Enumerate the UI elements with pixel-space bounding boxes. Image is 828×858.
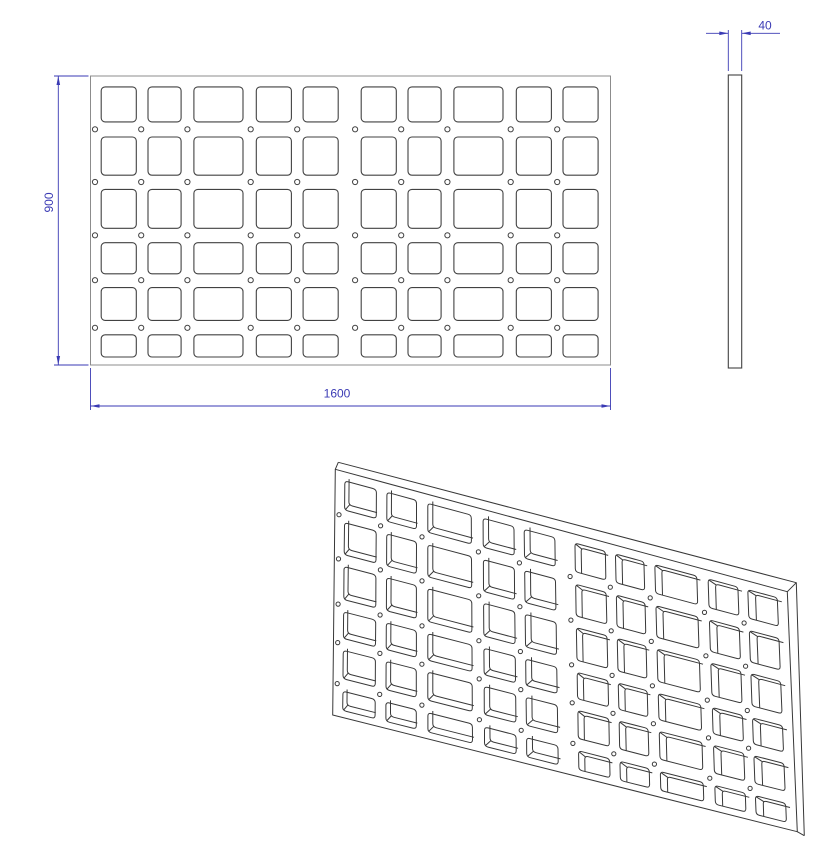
iso-cutout-depth (345, 521, 377, 557)
mounting-hole (139, 179, 144, 184)
cutout (256, 288, 291, 321)
dimension-width[interactable]: 1600 (91, 368, 611, 410)
mounting-hole (185, 233, 190, 238)
cutout (454, 243, 503, 274)
iso-mounting-hole (379, 524, 383, 528)
iso-cutout (658, 694, 701, 730)
iso-mounting-hole (650, 684, 654, 688)
iso-mounting-hole (708, 776, 712, 780)
iso-cutout (428, 673, 473, 711)
iso-cutout-depth (656, 566, 701, 595)
iso-cutout-depth (485, 647, 517, 677)
iso-cutout (616, 596, 645, 634)
cutout (361, 87, 396, 122)
cutout (563, 189, 598, 228)
iso-cutout (525, 615, 556, 654)
iso-mounting-hole (569, 618, 573, 622)
mounting-hole (248, 278, 253, 283)
mounting-hole (353, 278, 358, 283)
mounting-hole (92, 233, 97, 238)
iso-cutout (527, 738, 559, 764)
iso-cutout (428, 546, 472, 588)
mounting-hole (399, 325, 404, 330)
mounting-hole (508, 325, 513, 330)
iso-cutout-depth (344, 649, 376, 681)
iso-cutout-depth (712, 664, 745, 697)
cutout (256, 189, 291, 228)
iso-mounting-hole (336, 557, 340, 561)
cutout (101, 335, 136, 357)
iso-cutout-depth (485, 602, 517, 639)
iso-mounting-hole (378, 568, 382, 572)
iso-cutout (753, 719, 784, 752)
iso-cutout (655, 565, 698, 603)
cutout (101, 87, 136, 122)
iso-cutout-depth (618, 640, 649, 673)
iso-cutout (751, 674, 782, 713)
cutout (454, 189, 503, 228)
cutout (361, 189, 396, 228)
iso-mounting-hole (706, 736, 710, 740)
iso-cutout (576, 628, 607, 667)
cutout (194, 189, 243, 228)
iso-mounting-hole (518, 649, 522, 653)
iso-mounting-hole (378, 692, 382, 696)
cutout (516, 137, 551, 175)
cutout (361, 288, 396, 321)
dimension-arrow (91, 404, 100, 408)
iso-cutout-depth (526, 528, 558, 561)
cutout (303, 137, 338, 175)
iso-mounting-hole (611, 711, 615, 715)
iso-cutout (755, 796, 786, 821)
mounting-hole (445, 278, 450, 283)
cutout (101, 137, 136, 175)
iso-mounting-hole (568, 574, 572, 578)
drawing-canvas: 900160040 (0, 0, 828, 853)
iso-cutout-depth (388, 532, 418, 568)
cutout (361, 335, 396, 357)
iso-mounting-hole (745, 708, 749, 712)
iso-cutout-depth (620, 722, 651, 750)
mounting-hole (353, 179, 358, 184)
mounting-hole (353, 325, 358, 330)
iso-cutout-depth (659, 695, 704, 722)
iso-mounting-hole (702, 610, 706, 614)
iso-cutout (524, 530, 555, 566)
mounting-hole (399, 233, 404, 238)
cutout (148, 335, 181, 357)
iso-cutout (615, 555, 644, 590)
iso-cutout-depth (709, 580, 742, 609)
iso-cutout (754, 756, 785, 790)
mounting-hole (399, 179, 404, 184)
iso-cutout (428, 713, 473, 742)
iso-cutout-depth (750, 632, 783, 664)
cutout (408, 288, 441, 321)
mounting-hole (508, 233, 513, 238)
iso-cutout (714, 746, 745, 780)
iso-mounting-hole (337, 513, 341, 517)
cutout (194, 87, 243, 122)
iso-mounting-hole (571, 741, 575, 745)
iso-cutout-depth (527, 657, 560, 687)
iso-mounting-hole (477, 639, 481, 643)
cutout (256, 137, 291, 175)
iso-cutout (526, 698, 558, 733)
cutout (303, 243, 338, 274)
cutout (194, 243, 243, 274)
cutout (408, 335, 441, 357)
iso-cutout (428, 634, 472, 670)
iso-cutout (657, 650, 700, 692)
dimension-arrow (602, 404, 611, 408)
mounting-hole (555, 179, 560, 184)
iso-cutout-depth (387, 621, 417, 651)
iso-mounting-hole (476, 550, 480, 554)
iso-cutout-depth (527, 696, 560, 728)
dimension-thickness[interactable]: 40 (706, 19, 780, 72)
cutout (101, 243, 136, 274)
iso-cutout (525, 571, 556, 609)
iso-mounting-hole (609, 629, 613, 633)
cutout (563, 243, 598, 274)
mounting-hole (248, 127, 253, 132)
iso-cutout-depth (755, 757, 789, 785)
mounting-hole (508, 127, 513, 132)
iso-mounting-hole (608, 585, 612, 589)
iso-cutout-depth (388, 491, 418, 524)
cutout (454, 335, 503, 357)
cutout (303, 87, 338, 122)
cutout (194, 288, 243, 321)
iso-mounting-hole (744, 664, 748, 668)
dimension-text[interactable]: 1600 (324, 387, 351, 401)
iso-cutout (711, 664, 742, 703)
iso-cutout (483, 519, 514, 555)
iso-cutout-depth (578, 674, 611, 701)
dimension-text[interactable]: 40 (758, 19, 772, 33)
cutout (516, 243, 551, 274)
iso-cutout-depth (429, 632, 474, 666)
cutout (408, 137, 441, 175)
mounting-hole (555, 233, 560, 238)
iso-cutout-depth (345, 565, 377, 602)
iso-cutout-depth (528, 736, 561, 759)
iso-cutout-depth (387, 660, 417, 692)
dimension-height[interactable]: 900 (42, 76, 89, 365)
iso-mounting-hole (747, 746, 751, 750)
iso-cutout (428, 589, 472, 632)
iso-cutout (659, 732, 702, 769)
iso-cutout (343, 613, 375, 647)
iso-cutout-depth (429, 587, 474, 627)
iso-mounting-hole (748, 786, 752, 790)
mounting-hole (92, 278, 97, 283)
mounting-hole (295, 278, 300, 283)
iso-cutout-depth (749, 591, 782, 620)
iso-mounting-hole (336, 641, 340, 645)
iso-cutout-depth (527, 613, 559, 650)
mounting-hole (445, 233, 450, 238)
cutout (516, 189, 551, 228)
mounting-hole (508, 179, 513, 184)
mounting-hole (353, 233, 358, 238)
mounting-hole (555, 278, 560, 283)
front-cutouts (101, 87, 598, 357)
iso-mounting-hole (378, 613, 382, 617)
iso-cutout-depth (579, 712, 612, 740)
iso-mounting-hole (570, 663, 574, 667)
plate-outline-side (728, 75, 741, 368)
iso-cutout-depth (485, 558, 517, 594)
iso-plate-front-face (333, 469, 798, 831)
iso-cutout (484, 728, 516, 754)
iso-cutout (748, 590, 778, 625)
iso-mounting-hole (420, 535, 424, 539)
iso-cutout (708, 580, 739, 615)
iso-mounting-hole (420, 579, 424, 583)
iso-cutout-depth (617, 596, 648, 628)
iso-mounting-hole (612, 752, 616, 756)
iso-cutout (619, 722, 649, 756)
iso-cutout-depth (715, 747, 748, 775)
mounting-hole (92, 179, 97, 184)
iso-cutout-depth (619, 684, 650, 711)
iso-mounting-hole (648, 596, 652, 600)
iso-mounting-hole (477, 677, 481, 681)
iso-cutout-depth (346, 479, 377, 512)
iso-cutout-depth (710, 621, 743, 653)
cutout (256, 243, 291, 274)
iso-cutout-depth (485, 685, 517, 717)
mounting-hole (185, 127, 190, 132)
mounting-hole (295, 325, 300, 330)
iso-mounting-hole (651, 722, 655, 726)
mounting-hole (185, 325, 190, 330)
iso-cutout (656, 606, 699, 647)
mounting-hole (139, 325, 144, 330)
mounting-hole (185, 278, 190, 283)
iso-cutout (715, 786, 746, 811)
mounting-hole (445, 127, 450, 132)
iso-mounting-hole (519, 688, 523, 692)
side-view[interactable] (728, 75, 741, 368)
iso-cutout (709, 621, 740, 659)
iso-mounting-hole (649, 639, 653, 643)
cutout (516, 335, 551, 357)
cutout (516, 288, 551, 321)
iso-cutout (428, 504, 472, 543)
iso-cutout-depth (661, 773, 707, 793)
isometric-view[interactable] (333, 462, 805, 835)
cutout (256, 87, 291, 122)
cutout (148, 189, 181, 228)
iso-cutout (483, 560, 514, 599)
mounting-hole (185, 179, 190, 184)
iso-mounting-hole (517, 561, 521, 565)
mounting-hole (248, 179, 253, 184)
dimension-arrow (57, 76, 61, 85)
iso-cutout (618, 684, 648, 716)
iso-mounting-hole (477, 718, 481, 722)
cad-drawing-svg: 900160040 (0, 0, 828, 853)
iso-cutout-depth (344, 610, 376, 641)
iso-cutout (578, 711, 609, 745)
cutout (563, 335, 598, 357)
mounting-hole (139, 127, 144, 132)
iso-cutout (484, 649, 516, 682)
cutout (303, 288, 338, 321)
iso-mounting-hole (335, 682, 339, 686)
cutout (408, 189, 441, 228)
mounting-hole (295, 179, 300, 184)
iso-cutout-depth (577, 586, 609, 618)
iso-cutout-depth (429, 543, 473, 582)
cutout (101, 288, 136, 321)
iso-mounting-hole (420, 662, 424, 666)
iso-cutout (484, 604, 515, 643)
cutout (361, 137, 396, 175)
cutout (563, 137, 598, 175)
mounting-hole (139, 278, 144, 283)
iso-mounting-hole (742, 621, 746, 625)
mounting-hole (555, 127, 560, 132)
iso-cutout (712, 708, 743, 741)
mounting-hole (445, 325, 450, 330)
mounting-hole (248, 325, 253, 330)
cutout (361, 243, 396, 274)
iso-cutout-depth (429, 670, 474, 705)
iso-cutout-depth (429, 502, 473, 539)
iso-cutout (576, 585, 607, 623)
iso-mounting-hole (477, 594, 481, 598)
mounting-hole (399, 127, 404, 132)
dimension-arrow (57, 356, 61, 365)
cutout (194, 335, 243, 357)
cutout (408, 243, 441, 274)
front-view[interactable] (91, 76, 611, 365)
cutout (256, 335, 291, 357)
iso-cutout (575, 544, 606, 580)
mounting-hole (248, 233, 253, 238)
iso-cutout-depth (752, 675, 785, 708)
iso-cutout-depth (713, 709, 746, 736)
cutout (516, 87, 551, 122)
cutout (148, 87, 181, 122)
iso-mounting-hole (570, 701, 574, 705)
dimension-text[interactable]: 900 (42, 192, 56, 212)
mounting-hole (508, 278, 513, 283)
mounting-hole (399, 278, 404, 283)
mounting-hole (92, 127, 97, 132)
iso-mounting-hole (704, 654, 708, 658)
cutout (148, 288, 181, 321)
iso-mounting-hole (378, 651, 382, 655)
cutout (303, 335, 338, 357)
iso-cutout-depth (616, 555, 647, 584)
cutout (148, 243, 181, 274)
mounting-hole (92, 325, 97, 330)
cutout (148, 137, 181, 175)
iso-cutout-depth (660, 733, 705, 761)
mounting-hole (445, 179, 450, 184)
dimension-arrow (719, 32, 728, 36)
cutout (454, 288, 503, 321)
dimension-arrow (742, 32, 751, 36)
cutout (303, 189, 338, 228)
plate-outline-front (91, 76, 611, 365)
cutout (194, 137, 243, 175)
iso-cutout (526, 660, 557, 693)
cutout (408, 87, 441, 122)
iso-mounting-hole (610, 673, 614, 677)
mounting-hole (139, 233, 144, 238)
cutout (563, 87, 598, 122)
cutout (454, 87, 503, 122)
iso-cutout (617, 639, 647, 678)
cutout (454, 137, 503, 175)
iso-cutout-depth (754, 719, 787, 746)
mounting-hole (555, 325, 560, 330)
iso-mounting-hole (518, 605, 522, 609)
iso-mounting-hole (336, 602, 340, 606)
iso-mounting-hole (420, 703, 424, 707)
iso-cutout (577, 673, 608, 706)
iso-mounting-hole (705, 698, 709, 702)
iso-mounting-hole (420, 624, 424, 628)
iso-plate-corner-bevels (335, 462, 804, 835)
iso-cutout-depth (484, 516, 516, 549)
mounting-hole (295, 233, 300, 238)
iso-mounting-hole (652, 762, 656, 766)
iso-cutout (484, 687, 516, 722)
iso-mounting-hole (519, 728, 523, 732)
mounting-hole (353, 127, 358, 132)
mounting-hole (295, 127, 300, 132)
iso-cutout-depth (576, 544, 608, 573)
cutout (563, 288, 598, 321)
iso-cutout (749, 631, 780, 669)
cutout (101, 189, 136, 228)
iso-cutout-depth (526, 569, 558, 605)
iso-cutout-depth (577, 629, 610, 662)
